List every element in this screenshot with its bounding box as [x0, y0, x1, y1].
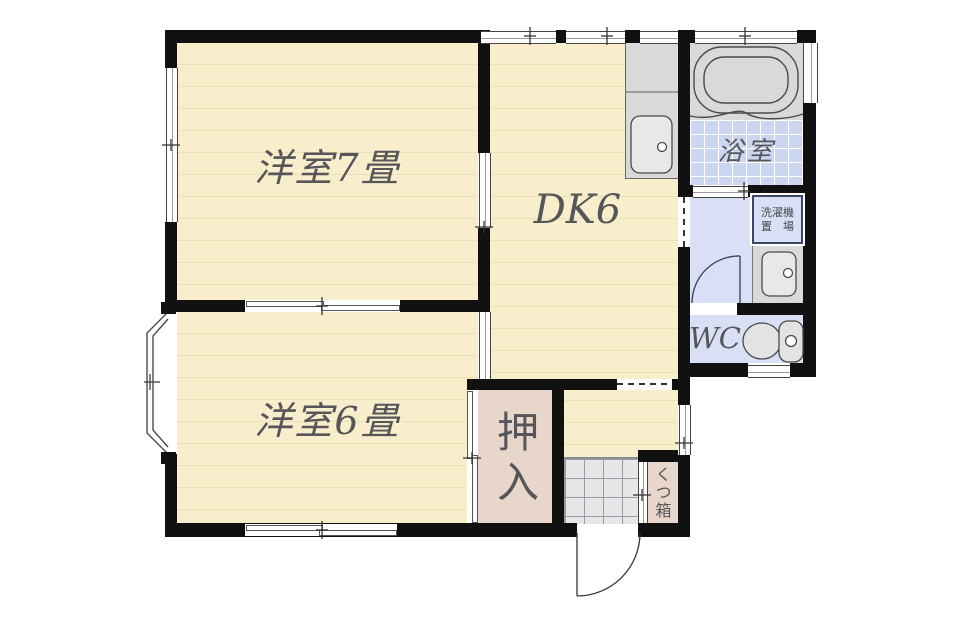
toilet-icon — [743, 321, 803, 362]
kitchen-sink-icon — [625, 92, 678, 173]
bay-corner — [161, 452, 176, 464]
washroom-door-swing — [692, 256, 740, 303]
floor-plan: 洗濯機 置 場 洋室7畳 洋室6畳 DK6 浴室 WC 押入 くつ箱 — [0, 0, 960, 622]
bay-corner — [161, 302, 176, 314]
bay-window — [144, 312, 168, 454]
washbasin-icon — [762, 252, 796, 296]
entrance-door-swing — [577, 533, 640, 596]
fixtures-layer — [0, 0, 960, 622]
tick-marks — [162, 27, 751, 539]
bathtub-icon — [690, 47, 803, 119]
